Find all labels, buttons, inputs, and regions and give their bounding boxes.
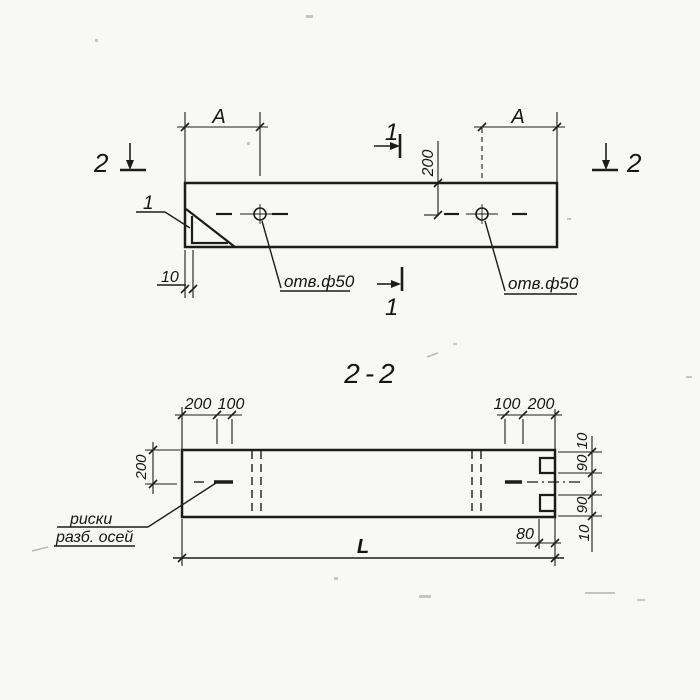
axis-note-line2: разб. осей	[55, 529, 133, 546]
dimension-200-plan: 200	[420, 141, 442, 219]
dim-top-left-100: 100	[218, 396, 245, 413]
hole-callout-right: отв.ф50	[485, 221, 579, 294]
hole-left	[216, 204, 288, 224]
section-1-top-label: 1	[385, 119, 398, 146]
section-view-2-2: 2-2 200 100	[54, 358, 602, 566]
section-mark-2-right: 2	[592, 143, 642, 178]
section-2-right-label: 2	[626, 148, 642, 178]
dim-200-plan-label: 200	[420, 150, 437, 178]
hole-diameter-label-left: отв.ф50	[284, 272, 355, 291]
axis-note-line1: риски	[69, 511, 112, 528]
dim-right-90-bottom: 90	[574, 496, 591, 513]
detail-callout-1: 1	[136, 193, 190, 228]
dimension-top-right: 100 200	[494, 396, 562, 449]
hidden-edges-left	[252, 451, 261, 516]
dim-right-90-top: 90	[574, 454, 591, 471]
dim-length-label: L	[357, 536, 369, 558]
hole-callout-left: отв.ф50	[262, 221, 355, 291]
dimension-10-plan: 10	[157, 250, 197, 298]
dim-10-plan-label: 10	[161, 269, 179, 286]
dim-right-10-top: 10	[574, 432, 591, 449]
dim-right-10-bottom: 10	[576, 524, 593, 541]
axis-note: риски разб. осей	[54, 483, 216, 546]
beam-outline-plan	[185, 183, 557, 247]
plan-view: A A 2 2 1	[93, 106, 642, 321]
dim-top-right-100: 100	[494, 396, 521, 413]
dim-a-right-label: A	[510, 106, 524, 128]
dimension-a-right: A	[474, 106, 565, 182]
dim-80-label: 80	[516, 526, 534, 543]
section-mark-2-left: 2	[93, 143, 146, 178]
technical-drawing-sheet: A A 2 2 1	[0, 0, 700, 700]
detail-1-label: 1	[143, 193, 154, 214]
dimension-left-200: 200	[133, 442, 180, 494]
dim-top-right-200: 200	[527, 396, 555, 413]
beam-outline-section	[182, 450, 555, 517]
dimension-top-left: 200 100	[175, 396, 244, 449]
dimension-length-l: L	[173, 518, 564, 566]
section-2-left-label: 2	[93, 148, 109, 178]
hole-diameter-label-right: отв.ф50	[508, 274, 579, 293]
section-mark-1-top: 1	[374, 119, 400, 158]
dimension-80: 80	[516, 519, 561, 549]
section-title: 2-2	[343, 358, 399, 389]
end-notches	[540, 458, 555, 511]
scan-specks	[32, 15, 692, 601]
section-1-bottom-label: 1	[385, 294, 398, 321]
hidden-edges-right	[472, 451, 481, 516]
dim-top-left-200: 200	[184, 396, 212, 413]
dimension-a-left: A	[177, 106, 268, 182]
beam-drawing-canvas: A A 2 2 1	[0, 0, 700, 700]
dimension-right-stack: 10 90 90 10	[558, 432, 602, 552]
dim-left-200-label: 200	[133, 454, 150, 481]
dim-a-left-label: A	[211, 106, 225, 128]
section-mark-1-bottom: 1	[377, 267, 402, 321]
